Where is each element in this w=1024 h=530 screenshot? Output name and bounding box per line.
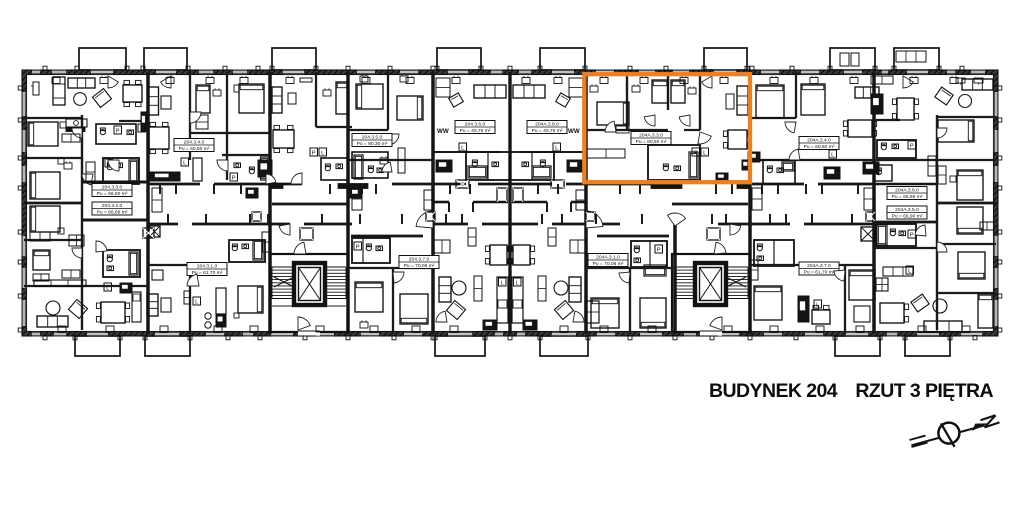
svg-text:P: P — [232, 175, 236, 181]
svg-text:204.3.1.0: 204.3.1.0 — [197, 264, 218, 270]
svg-text:204A.3.4.0: 204A.3.4.0 — [807, 138, 831, 144]
svg-text:204.3.7.0: 204.3.7.0 — [409, 257, 430, 263]
svg-text:Pu = 66,66 m²: Pu = 66,66 m² — [97, 209, 128, 215]
svg-text:Pu = 60,60 m²: Pu = 60,60 m² — [179, 146, 210, 152]
svg-text:WW: WW — [568, 128, 580, 135]
svg-text:204A.3.8.0: 204A.3.8.0 — [535, 122, 559, 128]
svg-text:204A.3.3.0: 204A.3.3.0 — [639, 133, 663, 139]
svg-text:P: P — [694, 150, 698, 156]
svg-text:P: P — [312, 150, 316, 156]
svg-text:204A.3.7.0: 204A.3.7.0 — [807, 263, 831, 269]
svg-text:Pu = 70,06 m²: Pu = 70,06 m² — [404, 263, 435, 269]
svg-text:204.3.6.0: 204.3.6.0 — [465, 122, 486, 128]
svg-text:Pu = 66,90 m²: Pu = 66,90 m² — [892, 213, 923, 219]
svg-text:Pu = 80,50 m²: Pu = 80,50 m² — [636, 139, 667, 145]
svg-text:BUDYNEK 204 RZUT 3 PIĘTRA: BUDYNEK 204 RZUT 3 PIĘTRA — [709, 380, 994, 402]
svg-text:Pu = 66,66 m²: Pu = 66,66 m² — [892, 194, 923, 200]
svg-text:Pu = 60,60 m²: Pu = 60,60 m² — [804, 144, 835, 150]
svg-text:204.3.3.0: 204.3.3.0 — [102, 185, 123, 191]
svg-text:Pu = 66,60 m²: Pu = 66,60 m² — [97, 191, 128, 197]
svg-text:204A.3.6.0: 204A.3.6.0 — [895, 188, 919, 194]
svg-text:204.3.2.0: 204.3.2.0 — [102, 203, 123, 209]
svg-text:204.3.4.0: 204.3.4.0 — [184, 140, 205, 146]
svg-text:WW: WW — [437, 128, 449, 135]
svg-text:204.3.5.0: 204.3.5.0 — [362, 135, 383, 141]
svg-text:Pu = 70,06 m²: Pu = 70,06 m² — [593, 261, 624, 267]
svg-text:P: P — [116, 128, 120, 134]
svg-text:204A.3.1.0: 204A.3.1.0 — [596, 255, 620, 261]
svg-text:204A.3.5.0: 204A.3.5.0 — [895, 207, 919, 213]
svg-text:P: P — [657, 247, 661, 253]
svg-text:Pu = 61,70 m²: Pu = 61,70 m² — [804, 269, 835, 275]
svg-text:Pu = 40,76 m²: Pu = 40,76 m² — [460, 128, 491, 134]
svg-text:Pu = 40,76 m²: Pu = 40,76 m² — [532, 128, 563, 134]
svg-text:P: P — [356, 244, 360, 250]
svg-text:Pu = 80,30 m²: Pu = 80,30 m² — [357, 141, 388, 147]
svg-text:P: P — [910, 143, 914, 149]
svg-text:P: P — [910, 232, 914, 238]
